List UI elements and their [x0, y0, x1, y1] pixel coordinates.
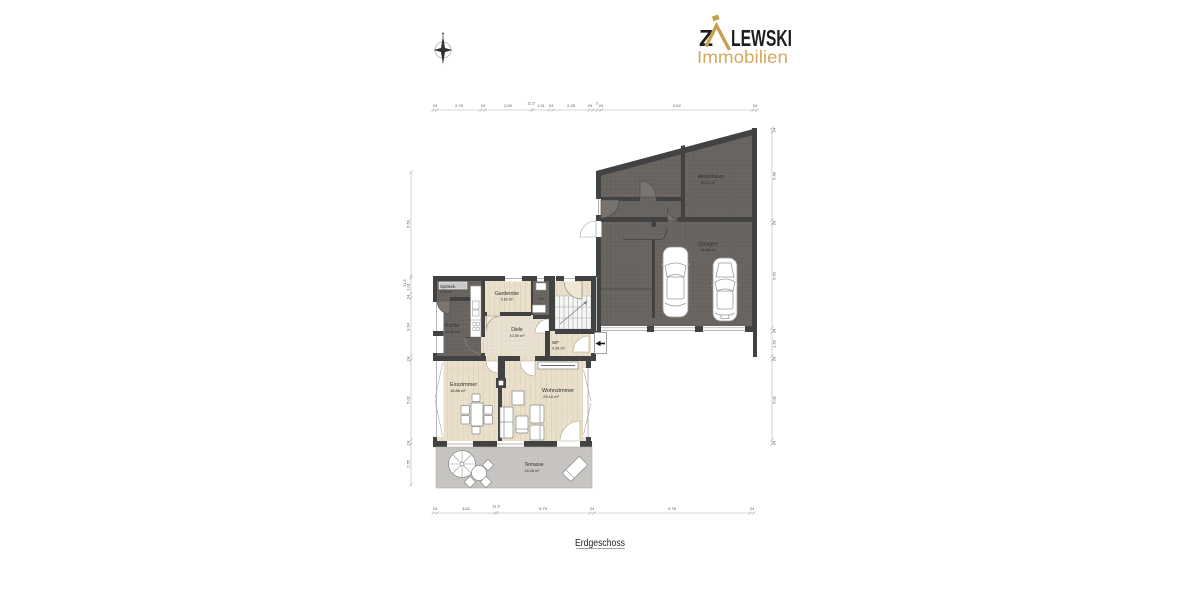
- svg-text:24: 24: [433, 506, 438, 511]
- svg-text:5.02: 5.02: [406, 395, 411, 404]
- svg-text:10.55 m²: 10.55 m²: [445, 330, 461, 334]
- svg-text:3.64: 3.64: [406, 322, 411, 331]
- svg-text:2.79 m²: 2.79 m²: [440, 290, 453, 294]
- svg-text:Immobilien: Immobilien: [697, 47, 788, 67]
- svg-text:24: 24: [406, 440, 411, 445]
- svg-text:5.79: 5.79: [539, 506, 548, 511]
- svg-text:39.32 m²: 39.32 m²: [701, 181, 717, 185]
- svg-text:24: 24: [433, 103, 438, 108]
- svg-text:2.76: 2.76: [455, 103, 464, 108]
- svg-text:Speisek.: Speisek.: [440, 284, 456, 289]
- svg-text:WF: WF: [552, 340, 559, 345]
- svg-text:11.5: 11.5: [527, 101, 535, 106]
- svg-text:2.90: 2.90: [504, 103, 513, 108]
- svg-text:6.50: 6.50: [406, 219, 411, 228]
- svg-text:5.82 m²: 5.82 m²: [501, 298, 515, 302]
- svg-text:10.59 m²: 10.59 m²: [510, 334, 526, 338]
- svg-text:24: 24: [772, 127, 777, 132]
- svg-text:Terrasse: Terrasse: [524, 462, 543, 468]
- svg-text:Abstellraum: Abstellraum: [698, 174, 724, 180]
- svg-text:24: 24: [772, 328, 777, 333]
- svg-text:Diele: Diele: [511, 327, 523, 333]
- svg-text:1.50: 1.50: [772, 339, 777, 348]
- svg-text:Garagen: Garagen: [698, 242, 718, 248]
- svg-text:29.16 m²: 29.16 m²: [543, 394, 559, 399]
- svg-text:24: 24: [750, 506, 755, 511]
- svg-text:2.26: 2.26: [567, 103, 576, 108]
- svg-text:24: 24: [549, 103, 554, 108]
- svg-text:18.86 m²: 18.86 m²: [450, 388, 466, 393]
- svg-text:2.60: 2.60: [538, 297, 544, 301]
- svg-text:24: 24: [406, 356, 411, 361]
- svg-text:Garderobe: Garderobe: [495, 291, 519, 297]
- svg-text:4.28 m²: 4.28 m²: [552, 347, 566, 351]
- svg-text:24: 24: [481, 103, 486, 108]
- svg-text:11.5: 11.5: [492, 504, 500, 509]
- svg-text:Erdgeschoss: Erdgeschoss: [575, 538, 625, 549]
- svg-text:24: 24: [599, 103, 604, 108]
- svg-text:61.88 m²: 61.88 m²: [701, 248, 717, 252]
- svg-text:1.01: 1.01: [537, 103, 546, 108]
- svg-text:24: 24: [590, 506, 595, 511]
- svg-text:24: 24: [753, 103, 758, 108]
- svg-text:24.26 m²: 24.26 m²: [525, 469, 541, 473]
- svg-text:2.55: 2.55: [406, 459, 411, 468]
- svg-text:5.48: 5.48: [772, 171, 777, 180]
- svg-text:24: 24: [406, 294, 411, 299]
- svg-text:3.62: 3.62: [462, 506, 471, 511]
- svg-text:6.50: 6.50: [772, 271, 777, 280]
- svg-text:24: 24: [588, 103, 593, 108]
- svg-text:Küche: Küche: [445, 323, 459, 329]
- svg-text:24: 24: [772, 220, 777, 225]
- svg-text:9.78: 9.78: [668, 506, 677, 511]
- svg-text:1.01: 1.01: [406, 282, 411, 291]
- svg-text:9.52: 9.52: [673, 103, 682, 108]
- svg-text:24: 24: [772, 356, 777, 361]
- svg-text:5.02: 5.02: [772, 395, 777, 404]
- svg-text:24: 24: [772, 440, 777, 445]
